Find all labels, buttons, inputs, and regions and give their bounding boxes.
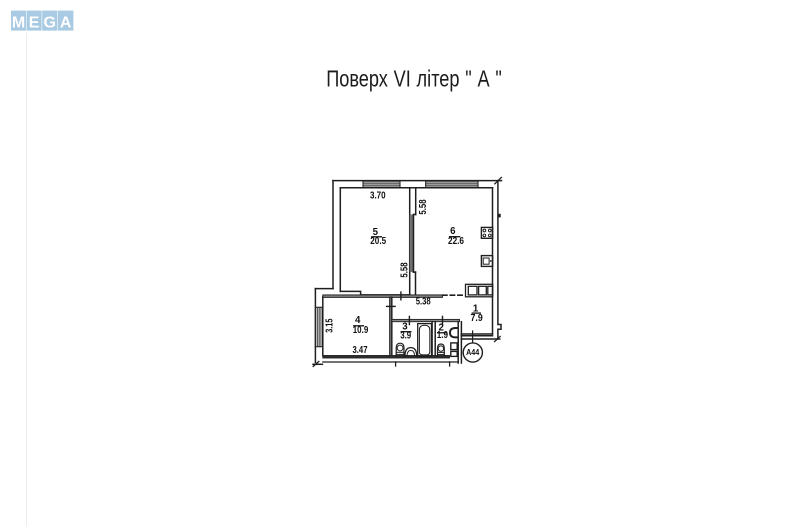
svg-text:3.9: 3.9 bbox=[400, 330, 411, 341]
svg-text:22.6: 22.6 bbox=[448, 236, 465, 247]
svg-text:3.15: 3.15 bbox=[324, 318, 335, 333]
svg-text:3.70: 3.70 bbox=[370, 190, 386, 201]
svg-text:3.47: 3.47 bbox=[353, 345, 368, 356]
svg-text:5.58: 5.58 bbox=[418, 199, 429, 215]
svg-text:G: G bbox=[43, 14, 55, 31]
svg-text:1.9: 1.9 bbox=[437, 330, 449, 341]
svg-text:20.5: 20.5 bbox=[370, 236, 386, 247]
svg-text:5.58: 5.58 bbox=[400, 262, 411, 278]
svg-text:А44: А44 bbox=[466, 348, 480, 357]
svg-text:10.9: 10.9 bbox=[353, 325, 369, 336]
svg-text:5.38: 5.38 bbox=[416, 296, 431, 307]
svg-text:7.9: 7.9 bbox=[471, 313, 484, 324]
svg-text:E: E bbox=[29, 14, 40, 31]
svg-text:A: A bbox=[60, 14, 72, 31]
svg-text:Поверх VI літер " А ": Поверх VI літер " А " bbox=[326, 66, 502, 92]
svg-text:M: M bbox=[12, 14, 25, 31]
